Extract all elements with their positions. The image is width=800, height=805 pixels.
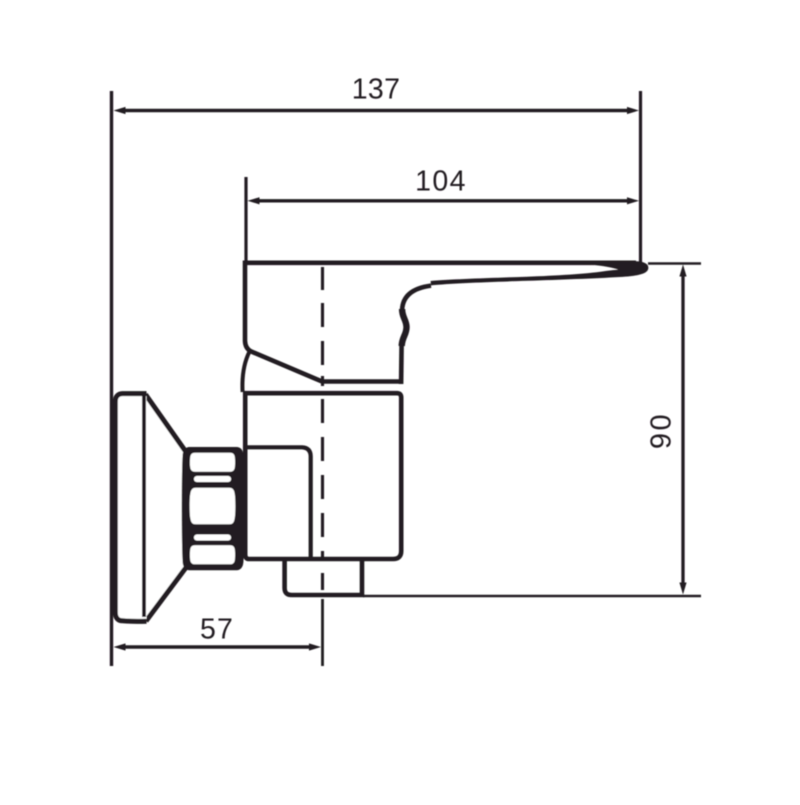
svg-text:90: 90 [646,412,678,449]
svg-text:57: 57 [200,614,234,646]
svg-text:104: 104 [415,166,467,198]
svg-text:137: 137 [352,74,400,106]
